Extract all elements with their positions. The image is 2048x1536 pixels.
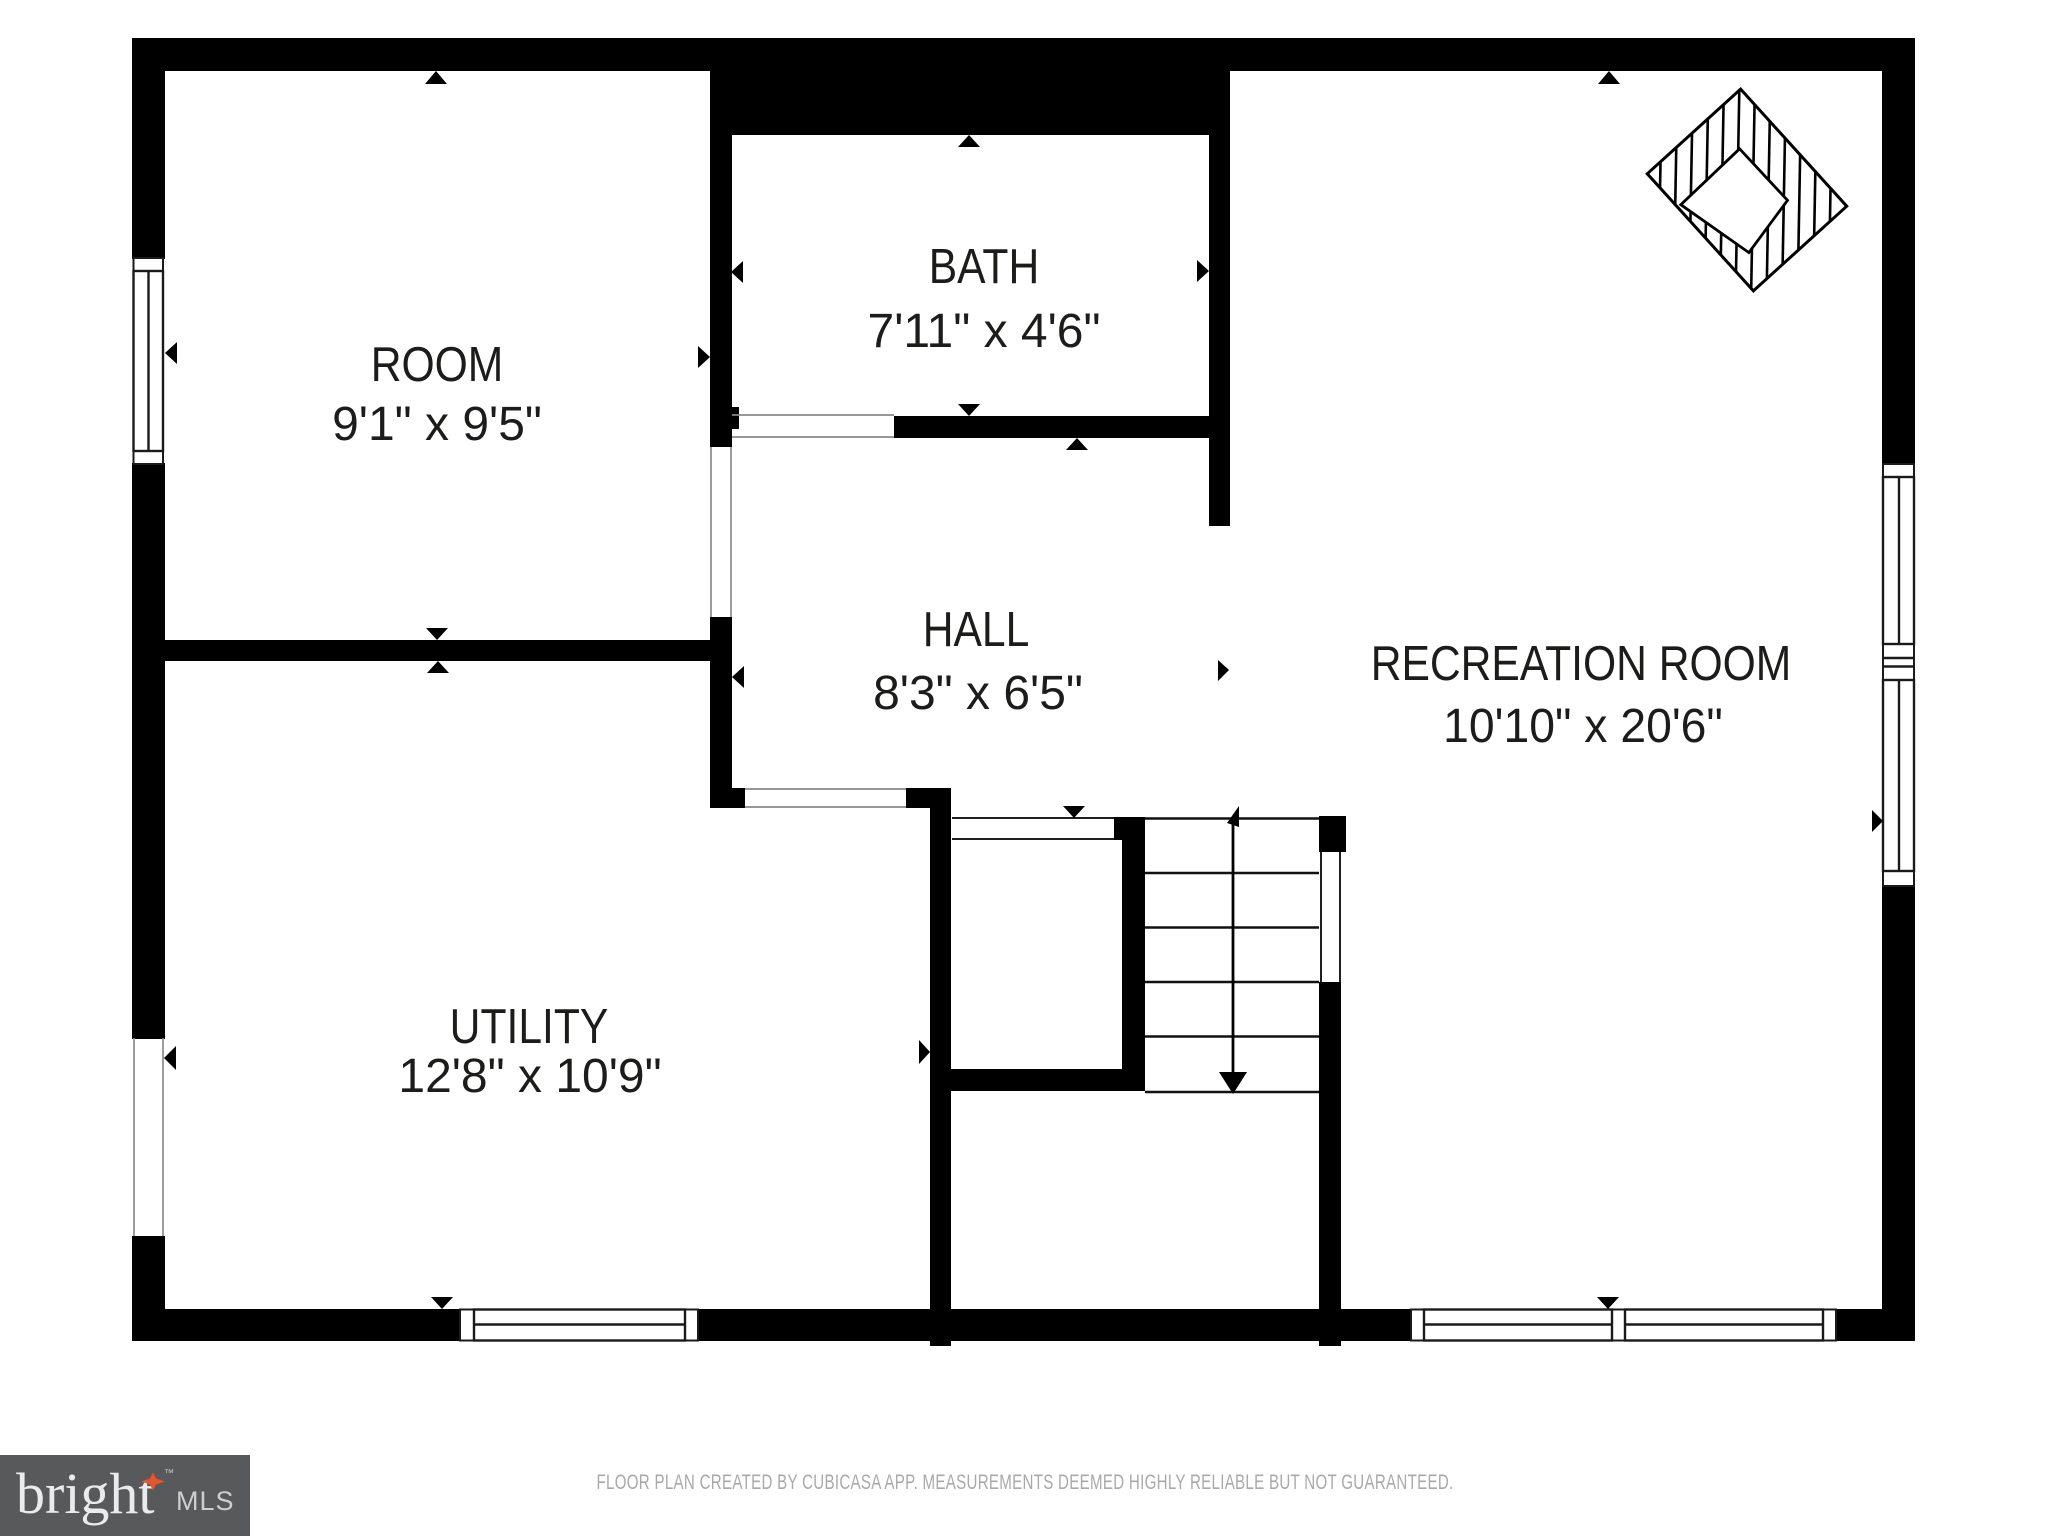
svg-text:12'8" x 10'9": 12'8" x 10'9" (398, 1050, 661, 1103)
svg-text:UTILITY: UTILITY (450, 998, 609, 1053)
svg-text:RECREATION ROOM: RECREATION ROOM (1371, 635, 1792, 690)
svg-text:MLS: MLS (176, 1486, 235, 1516)
svg-text:7'11" x 4'6": 7'11" x 4'6" (868, 305, 1101, 358)
svg-text:ROOM: ROOM (371, 336, 504, 391)
svg-text:bright: bright (16, 1461, 155, 1526)
svg-text:10'10" x 20'6": 10'10" x 20'6" (1443, 698, 1723, 752)
svg-text:8'3" x 6'5": 8'3" x 6'5" (873, 667, 1083, 720)
svg-text:™: ™ (164, 1468, 174, 1479)
svg-text:9'1" x 9'5": 9'1" x 9'5" (332, 398, 542, 451)
svg-text:HALL: HALL (923, 601, 1030, 656)
svg-text:BATH: BATH (929, 238, 1039, 293)
svg-text:FLOOR PLAN CREATED BY CUBICASA: FLOOR PLAN CREATED BY CUBICASA APP. MEAS… (597, 1469, 1454, 1493)
